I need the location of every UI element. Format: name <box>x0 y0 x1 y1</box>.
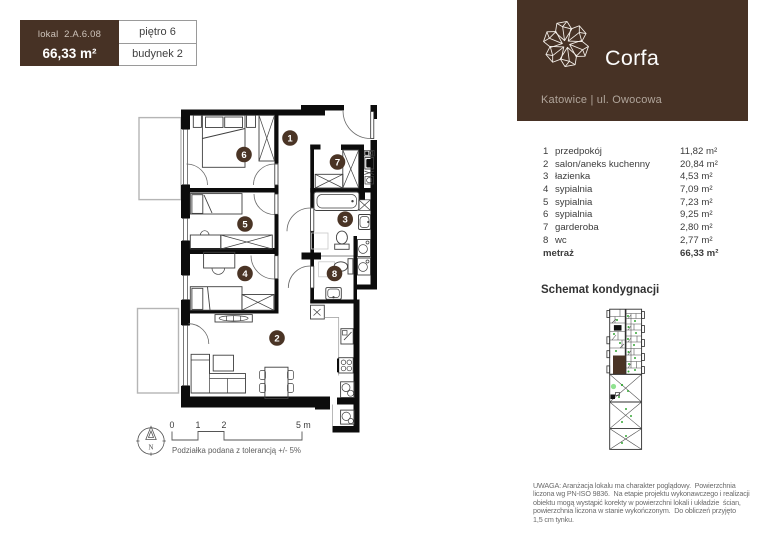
svg-text:6: 6 <box>241 150 246 161</box>
svg-text:5 m: 5 m <box>296 420 311 430</box>
svg-text:7: 7 <box>335 157 340 168</box>
svg-text:3: 3 <box>343 215 348 226</box>
svg-text:2: 2 <box>274 333 279 344</box>
svg-text:1: 1 <box>287 133 293 144</box>
svg-text:2: 2 <box>222 420 227 430</box>
svg-text:5: 5 <box>242 219 248 230</box>
svg-text:Podziałka podana z tolerancją: Podziałka podana z tolerancją +/- 5% <box>172 446 301 455</box>
svg-text:4: 4 <box>242 269 248 280</box>
svg-text:0: 0 <box>170 420 175 430</box>
svg-text:N: N <box>149 445 154 452</box>
svg-text:8: 8 <box>332 269 337 280</box>
svg-text:1: 1 <box>196 420 201 430</box>
